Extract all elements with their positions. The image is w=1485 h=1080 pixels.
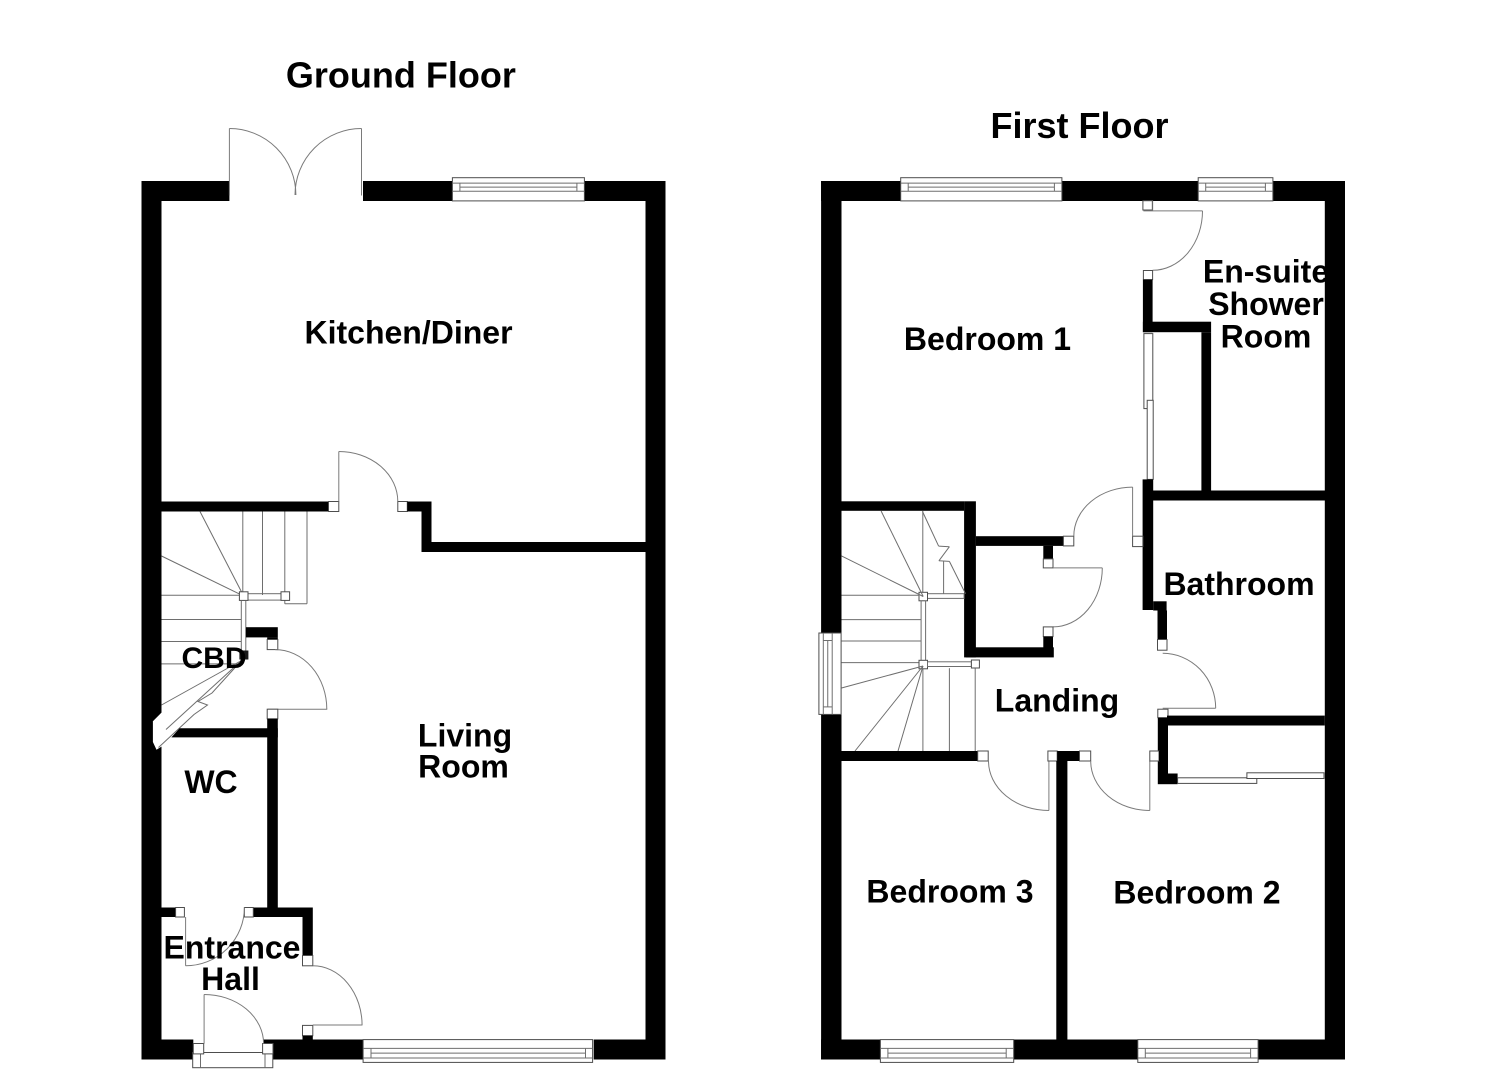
svg-text:Ground Floor: Ground Floor [286, 55, 516, 96]
svg-text:Shower: Shower [1208, 286, 1324, 322]
svg-text:Kitchen/Diner: Kitchen/Diner [304, 315, 512, 351]
svg-text:Room: Room [1221, 319, 1312, 355]
svg-text:Room: Room [418, 749, 509, 785]
svg-text:CBD: CBD [182, 642, 247, 675]
svg-text:Hall: Hall [201, 961, 260, 997]
svg-text:First Floor: First Floor [991, 105, 1169, 146]
svg-text:Entrance: Entrance [164, 929, 301, 965]
svg-text:Bedroom 2: Bedroom 2 [1113, 875, 1280, 911]
svg-text:Landing: Landing [995, 683, 1119, 719]
svg-text:Bathroom: Bathroom [1163, 566, 1314, 602]
svg-text:En-suite: En-suite [1203, 254, 1329, 290]
svg-text:WC: WC [184, 764, 237, 800]
svg-text:Bedroom 1: Bedroom 1 [904, 321, 1071, 357]
svg-text:Bedroom 3: Bedroom 3 [866, 874, 1033, 910]
